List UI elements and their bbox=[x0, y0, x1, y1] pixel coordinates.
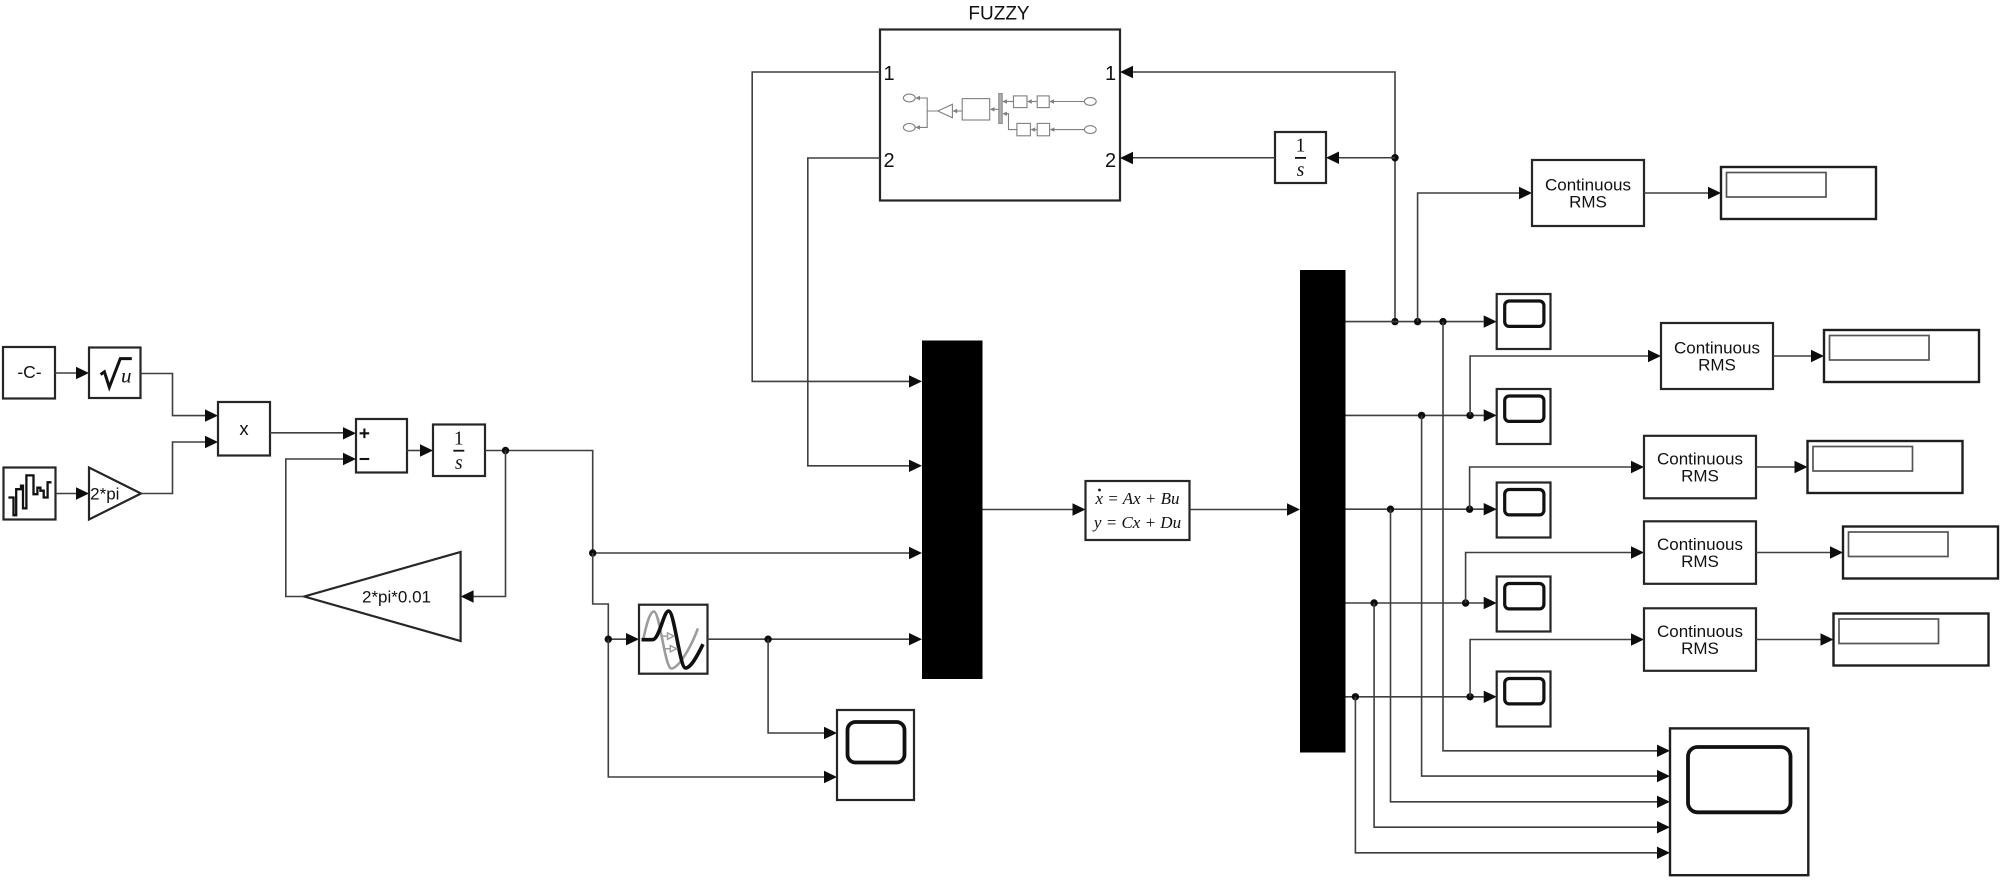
svg-text:2: 2 bbox=[1105, 150, 1116, 172]
svg-text:2: 2 bbox=[883, 150, 894, 172]
svg-text:RMS: RMS bbox=[1681, 639, 1719, 658]
svg-text:2*pi: 2*pi bbox=[90, 485, 119, 504]
svg-text:x = Ax + Bu: x = Ax + Bu bbox=[1095, 489, 1180, 508]
svg-text:s: s bbox=[455, 453, 463, 474]
svg-text:u: u bbox=[121, 364, 132, 388]
svg-text:2*pi*0.01: 2*pi*0.01 bbox=[362, 588, 431, 607]
svg-text:-C-: -C- bbox=[17, 362, 41, 382]
svg-text:y = Cx + Du: y = Cx + Du bbox=[1092, 513, 1181, 532]
svg-text:1: 1 bbox=[454, 428, 464, 449]
svg-text:RMS: RMS bbox=[1698, 355, 1736, 374]
svg-text:1: 1 bbox=[1296, 136, 1306, 157]
svg-text:x: x bbox=[239, 418, 249, 439]
svg-text:RMS: RMS bbox=[1681, 466, 1719, 485]
svg-text:s: s bbox=[1297, 160, 1305, 181]
svg-text:RMS: RMS bbox=[1681, 552, 1719, 571]
svg-text:1: 1 bbox=[883, 63, 894, 85]
svg-text:1: 1 bbox=[1105, 63, 1116, 85]
svg-text:FUZZY: FUZZY bbox=[968, 4, 1030, 25]
svg-text:RMS: RMS bbox=[1569, 192, 1607, 211]
